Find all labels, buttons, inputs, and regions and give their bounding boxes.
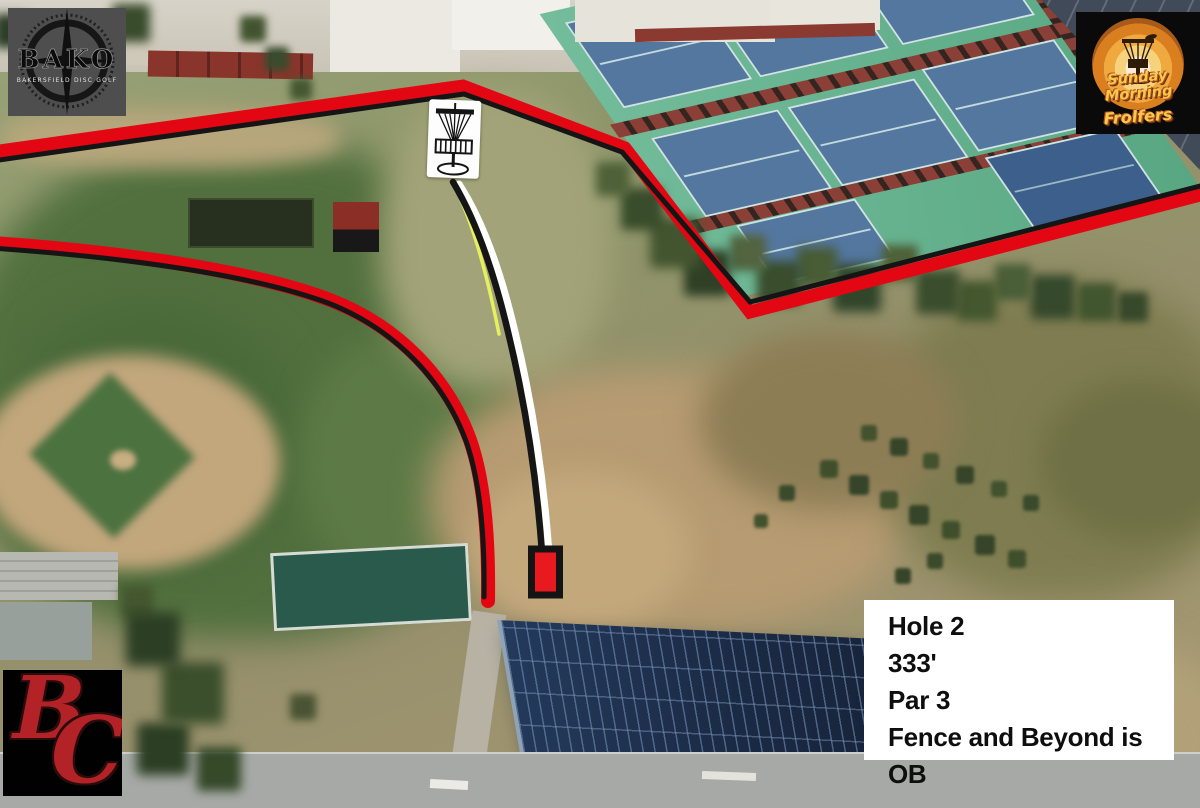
hole-par: Par 3 xyxy=(888,682,1174,719)
compass-rose-icon: BAKO BAKERSFIELD DISC GOLF xyxy=(8,8,126,116)
bc-letter-c: C xyxy=(51,704,122,796)
hole-map: BAKO BAKERSFIELD DISC GOLF Sunday Mornin… xyxy=(0,0,1200,808)
hole-number: Hole 2 xyxy=(888,608,1174,645)
disc-golf-basket-icon xyxy=(427,99,482,179)
tee-pad xyxy=(532,549,560,595)
bc-logo: B C xyxy=(3,670,122,796)
bako-title: BAKO xyxy=(18,45,117,75)
hole-distance: 333' xyxy=(888,645,1174,682)
bako-subtitle: BAKERSFIELD DISC GOLF xyxy=(17,77,117,84)
bako-logo: BAKO BAKERSFIELD DISC GOLF xyxy=(8,8,126,116)
frolfers-title-line2: Frolfers xyxy=(1076,103,1200,131)
ob-line-fence xyxy=(0,86,1200,312)
ob-line-outfield xyxy=(0,243,488,601)
flight-path-black xyxy=(453,182,542,553)
basket-icon xyxy=(427,99,482,179)
hole-info-box: Hole 2 333' Par 3 Fence and Beyond is OB xyxy=(864,600,1174,760)
sunday-morning-frolfers-logo: Sunday Morning Frolfers xyxy=(1076,12,1200,134)
ob-line-outfield-casing xyxy=(0,248,484,597)
ob-rule: Fence and Beyond is OB xyxy=(888,719,1174,793)
